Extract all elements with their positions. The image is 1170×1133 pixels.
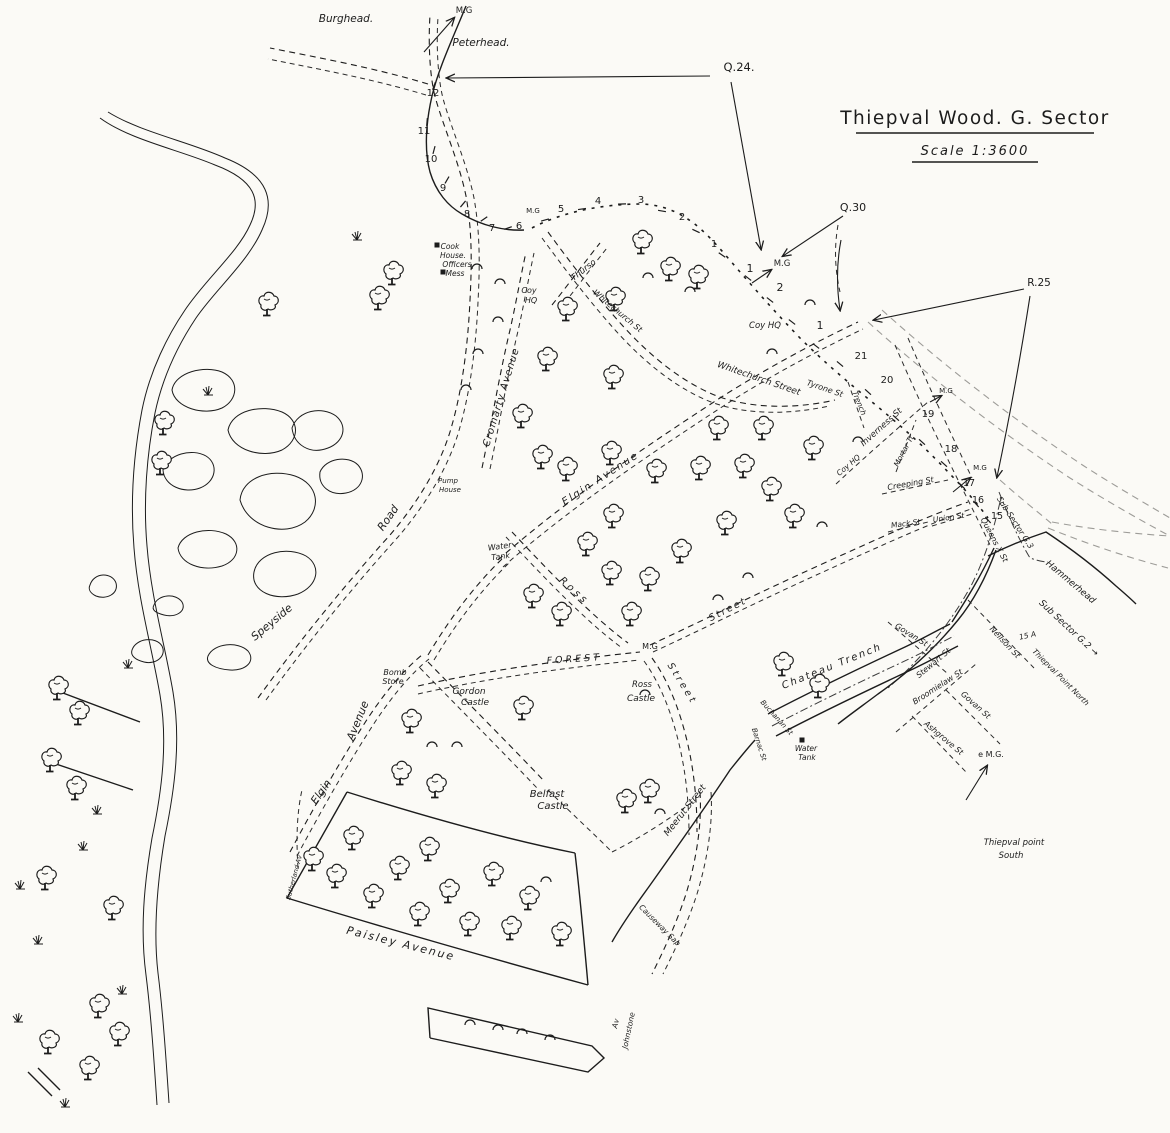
shelter-arc-symbol — [743, 573, 753, 578]
tree-symbol — [640, 567, 659, 590]
trench-tick — [837, 361, 843, 366]
tree-symbol — [384, 261, 403, 284]
map-label-mack-st: Mack St — [890, 517, 922, 530]
map-label-road: Road — [375, 502, 402, 533]
grass-symbol — [92, 805, 102, 814]
map-label-mg-17: M.G — [973, 464, 987, 472]
map-label-num-1c: 1 — [817, 319, 824, 332]
trench-tick — [427, 118, 428, 126]
shelter-arc-symbol — [541, 877, 551, 882]
q30-down-arrow — [838, 240, 842, 310]
tree-symbol — [604, 504, 623, 527]
map-label-govan-st-2: Govan St — [959, 690, 993, 722]
front-line-corner — [952, 548, 994, 622]
tree-symbol — [40, 1030, 59, 1053]
trench-tick — [941, 461, 947, 466]
elgin-avenue-join-path — [428, 556, 505, 655]
map-label-num-18: 18 — [945, 444, 958, 455]
tree-symbol — [42, 748, 61, 771]
shelter-arc-symbol — [805, 300, 815, 305]
map-label-ross-castle-b: Castle — [627, 694, 656, 704]
building-square-symbol — [435, 243, 440, 248]
tree-symbol — [533, 445, 552, 468]
map-label-coy-hq-1b: HQ — [525, 296, 537, 305]
tree-symbol — [402, 709, 421, 732]
title-block: Thiepval Wood. G. Sector Scale 1:3600 — [839, 108, 1110, 162]
outpost-line — [532, 204, 988, 518]
tree-symbol — [640, 779, 659, 802]
map-label-sutherland-av: Sutherland Av — [284, 854, 304, 901]
mg-19-arrow — [930, 396, 941, 402]
map-label-speyside: Speyside — [249, 601, 296, 643]
tree-symbol — [552, 922, 571, 945]
elgin-avenue-join-path-2 — [434, 561, 511, 660]
trench-tick — [658, 210, 666, 211]
grass-symbol — [203, 386, 213, 395]
map-label-cromarty-avenue: Cromarty Avenue — [481, 346, 522, 448]
shelter-arc-symbol — [685, 287, 695, 292]
river-west-bank — [100, 118, 255, 1105]
map-symbols-layer — [13, 82, 991, 1107]
shelter-arc-symbol — [452, 742, 462, 747]
map-label-num-8: 8 — [464, 209, 470, 220]
trench-map-page: Burghead.M.GPeterhead.Q.24.1211109876M.G… — [0, 0, 1170, 1133]
tree-symbol — [691, 456, 710, 479]
corner-marks — [28, 1068, 60, 1096]
tree-symbol — [259, 292, 278, 315]
tree-symbol — [520, 886, 539, 909]
speyside-road-path-2 — [266, 17, 479, 700]
map-label-ashgrove-st: Ashgrove St — [921, 718, 965, 757]
shelter-arc-symbol — [472, 264, 482, 269]
speyside-road-path — [258, 15, 471, 698]
grass-symbol — [15, 880, 25, 889]
tree-symbol — [304, 847, 323, 870]
paisley-avenue-line — [287, 898, 588, 985]
tree-symbol — [70, 701, 89, 724]
map-label-num-7: 7 — [489, 223, 495, 234]
tree-symbol — [344, 826, 363, 849]
map-label-officers: Officers — [442, 260, 471, 269]
burghead-road-path — [270, 48, 428, 84]
thiepval-wood-map: Burghead.M.GPeterhead.Q.24.1211109876M.G… — [0, 0, 1170, 1133]
shelter-arc-symbol — [713, 595, 723, 600]
shelter-arc-symbol — [817, 522, 827, 527]
map-label-num-17: 17 — [963, 478, 975, 489]
tree-symbol — [390, 856, 409, 879]
map-label-house: House. — [440, 251, 466, 260]
map-label-num-1b: 1 — [747, 262, 754, 275]
shelter-arc-symbol — [493, 1025, 503, 1030]
map-scale: Scale 1:3600 — [921, 144, 1030, 159]
map-label-thurso: Thurso — [569, 258, 598, 284]
tree-symbol — [460, 912, 479, 935]
map-label-water-tank-1b: Tank — [491, 551, 511, 563]
tree-symbol — [370, 286, 389, 309]
trench-tick — [865, 389, 871, 394]
mg-east-arrow — [966, 766, 987, 800]
map-label-mg-1: M.G — [774, 259, 791, 269]
grass-symbol — [78, 841, 88, 850]
grass-symbol — [352, 231, 362, 240]
tree-symbol — [804, 436, 823, 459]
tree-symbol — [661, 257, 680, 280]
map-label-buchanan-st: Buchanan St — [759, 698, 795, 737]
inverness-st-path — [836, 402, 928, 484]
map-label-trench-small: Trench — [850, 390, 868, 417]
map-label-sub-sector-g2: Sub Sector G.2 → — [1037, 598, 1101, 659]
tree-symbol — [484, 862, 503, 885]
map-label-mg-6: M.G — [526, 207, 540, 215]
shelter-arc-symbol — [427, 742, 437, 747]
tree-symbol — [90, 994, 109, 1017]
map-label-forest-street-a: F O R E S T — [546, 652, 600, 667]
tree-symbol — [37, 866, 56, 889]
bottom-left-path-2 — [50, 762, 133, 790]
map-label-pump-house-b: House — [439, 486, 461, 494]
map-label-ross-street-a: R o s s — [557, 575, 589, 605]
german-trench-2 — [908, 338, 972, 478]
gordon-block-road-path — [428, 662, 545, 782]
map-label-num-1: 1 — [711, 239, 717, 250]
tree-symbol — [538, 347, 557, 370]
map-label-johnstone-av: Av — [610, 1017, 621, 1030]
shelter-arc-symbol — [461, 385, 471, 390]
paisley-block-east — [575, 853, 588, 985]
map-label-coy-hq-3: Coy HQ — [835, 453, 862, 478]
map-label-num-4: 4 — [595, 196, 601, 207]
map-label-chateau-trench: Chateau Trench — [780, 642, 883, 692]
map-label-num-12: 12 — [427, 88, 440, 99]
map-label-thiepval-point-south-1: Thiepval point — [984, 838, 1045, 848]
map-label-bomb-store-a: Bomb — [383, 668, 406, 677]
tree-symbol — [110, 1022, 129, 1045]
map-label-num-2: 2 — [679, 212, 685, 223]
map-label-neilson-st: Neilson St — [988, 625, 1023, 661]
grass-symbol — [123, 659, 133, 668]
map-label-num-15a: 15 A — [1018, 629, 1037, 641]
tree-symbol — [427, 774, 446, 797]
map-label-burghead: Burghead. — [319, 13, 373, 25]
map-label-mg-crossing: M.G — [642, 642, 658, 651]
grass-symbol — [33, 935, 43, 944]
marsh-ponds — [89, 369, 362, 670]
trench-lines-layer — [28, 6, 1136, 1096]
grass-symbol — [60, 1098, 70, 1107]
forest-street-path — [418, 652, 640, 686]
tree-symbol — [735, 454, 754, 477]
tree-symbol — [774, 652, 793, 675]
river-and-marsh-layer — [89, 112, 362, 1105]
q24-west-arrow — [447, 76, 710, 78]
trench-tick — [460, 201, 465, 207]
shelter-arc-symbol — [495, 279, 505, 284]
tree-symbol — [558, 457, 577, 480]
map-label-num-5: 5 — [558, 204, 564, 215]
map-label-avenue-1: Avenue — [344, 699, 372, 744]
map-label-num-11: 11 — [418, 126, 431, 137]
tree-symbol — [558, 297, 577, 320]
trench-tick — [719, 253, 726, 258]
map-label-gordon-castle-b: Castle — [461, 698, 490, 708]
tree-symbol — [327, 864, 346, 887]
tree-symbol — [762, 477, 781, 500]
map-label-num-15: 15 — [991, 511, 1003, 522]
tree-symbol — [717, 511, 736, 534]
tree-symbol — [152, 451, 171, 474]
map-label-mg-east: e M.G. — [978, 750, 1004, 759]
river-east-bank — [108, 112, 268, 1103]
map-label-num-20: 20 — [881, 375, 894, 386]
tree-symbol — [104, 896, 123, 919]
tree-symbol — [785, 504, 804, 527]
causeway-sap-path-2 — [663, 792, 711, 974]
elgin-avenue-left-path-2 — [297, 659, 429, 856]
map-label-gordon-castle-a: Gordon — [452, 687, 485, 697]
tree-symbol — [49, 676, 68, 699]
tree-symbol — [67, 776, 86, 799]
q24-south-arrow — [731, 82, 761, 249]
tree-symbol — [622, 602, 641, 625]
map-label-coy-hq-1a: Coy — [521, 286, 536, 295]
tree-symbol — [689, 265, 708, 288]
queens-x-st-path — [888, 502, 1000, 688]
map-label-causeway-sap: Causeway Sap — [637, 903, 682, 948]
johnstone-block — [428, 1008, 604, 1072]
ross-street-ne-path-2 — [653, 509, 971, 652]
map-label-bomb-store-b: Store — [382, 677, 403, 686]
bottom-left-path-1 — [55, 690, 140, 722]
trench-tick — [789, 320, 795, 325]
map-label-barnac-st: Barnac St — [750, 727, 768, 762]
map-label-elgin-1: Elgin — [308, 777, 334, 807]
map-label-coy-hq-2: Coy HQ — [749, 321, 781, 331]
map-label-govan-st-1: Govan St — [893, 621, 930, 648]
map-label-water-tank-2b: Tank — [798, 753, 816, 762]
map-label-johnstone: Johnstone — [620, 1011, 637, 1052]
tree-symbol — [633, 230, 652, 253]
trench-tick — [692, 229, 699, 232]
map-label-peterhead: Peterhead. — [452, 37, 509, 49]
tree-symbol — [672, 539, 691, 562]
map-label-num-16: 16 — [972, 495, 984, 506]
trench-tick — [481, 217, 488, 222]
map-label-num-3: 3 — [638, 195, 644, 206]
map-label-creeping-st: Creeping St — [887, 475, 936, 492]
shelter-arc-symbol — [465, 1020, 475, 1025]
meerut-street-line — [612, 740, 755, 942]
map-label-q24: Q.24. — [724, 60, 755, 74]
tree-symbol — [440, 879, 459, 902]
map-label-num-2b: 2 — [777, 281, 784, 294]
tree-symbol — [602, 561, 621, 584]
trench-tick — [767, 298, 773, 303]
tree-symbol — [524, 584, 543, 607]
map-label-tyrone-st: Tyrone St — [805, 378, 845, 399]
tree-symbol — [552, 602, 571, 625]
tree-symbol — [754, 416, 773, 439]
tree-symbol — [513, 404, 532, 427]
map-label-hammerhead: Hammerhead — [1044, 559, 1098, 606]
tree-symbol — [578, 532, 597, 555]
gordon-block-road-path-2 — [420, 668, 537, 788]
shelter-arc-symbol — [493, 317, 503, 322]
map-label-ross-castle-a: Ross — [632, 680, 653, 690]
shelter-arc-symbol — [643, 273, 653, 278]
grass-symbol — [13, 1013, 23, 1022]
map-label-mg-top: M.G — [456, 6, 473, 16]
map-label-r25: R.25 — [1027, 277, 1051, 289]
tree-symbol — [617, 789, 636, 812]
map-label-water-tank-2a: Water — [795, 744, 818, 753]
map-label-thiepval-point-north: Thiepval Point North — [1031, 647, 1092, 708]
trench-tick — [541, 219, 549, 221]
map-label-num-10: 10 — [425, 154, 438, 165]
map-label-mortar-tr: Mortar Tr — [892, 433, 916, 468]
building-square-symbol — [800, 738, 805, 743]
trench-tick — [433, 146, 435, 154]
map-label-belfast-castle-b: Castle — [537, 801, 568, 812]
map-label-mg-19: M.G — [939, 387, 953, 395]
map-label-union-st: Union St — [932, 511, 966, 524]
map-label-thiepval-point-south-2: South — [999, 851, 1024, 861]
map-label-num-9: 9 — [440, 183, 446, 194]
q30-arrow — [783, 216, 843, 256]
map-label-street-south: S t r e e t — [665, 661, 698, 705]
map-label-belfast-castle-a: Belfast — [530, 789, 566, 800]
map-label-num-21: 21 — [855, 351, 868, 362]
tree-symbol — [709, 416, 728, 439]
tree-symbol — [410, 902, 429, 925]
tree-symbol — [604, 365, 623, 388]
map-label-num-19: 19 — [922, 409, 935, 420]
forest-street-path-2 — [418, 660, 640, 694]
tree-symbol — [514, 696, 533, 719]
shelter-arc-symbol — [655, 809, 665, 814]
r25-west-arrow — [874, 289, 1024, 320]
map-label-num-6: 6 — [516, 221, 522, 232]
map-label-pump-house-a: Pump — [438, 477, 458, 485]
tree-symbol — [502, 916, 521, 939]
map-label-mess: Mess — [446, 269, 465, 278]
map-label-q30: Q.30 — [840, 201, 866, 214]
map-title: Thiepval Wood. G. Sector — [839, 108, 1110, 129]
r25-south-arrow — [997, 296, 1030, 477]
tree-symbol — [155, 411, 174, 434]
tree-symbol — [420, 837, 439, 860]
tree-symbol — [364, 884, 383, 907]
tree-symbol — [80, 1056, 99, 1079]
mg-1-arrow — [752, 270, 771, 283]
map-label-cook: Cook — [441, 242, 460, 251]
grass-symbol — [117, 985, 127, 994]
trench-tick — [813, 344, 819, 349]
tree-symbol — [647, 459, 666, 482]
shelter-arc-symbol — [767, 349, 777, 354]
tree-symbol — [392, 761, 411, 784]
